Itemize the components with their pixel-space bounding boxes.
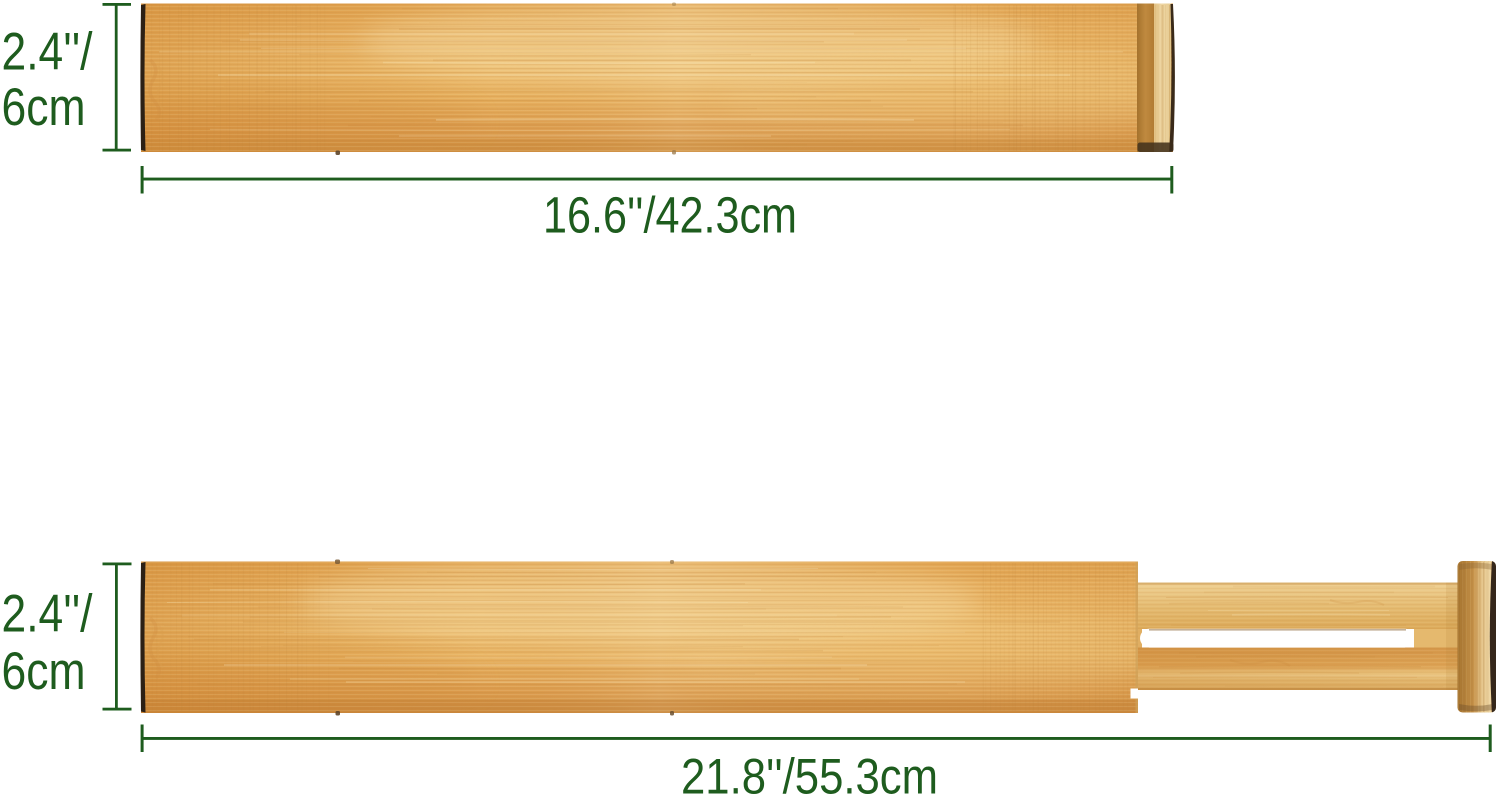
svg-text:6cm: 6cm bbox=[2, 642, 86, 701]
svg-text:2.4''/: 2.4''/ bbox=[2, 585, 93, 644]
svg-text:21.8''/55.3cm: 21.8''/55.3cm bbox=[681, 749, 938, 804]
svg-text:2.4''/: 2.4''/ bbox=[2, 23, 93, 82]
svg-text:16.6''/42.3cm: 16.6''/42.3cm bbox=[543, 187, 797, 244]
svg-text:6cm: 6cm bbox=[2, 78, 86, 137]
